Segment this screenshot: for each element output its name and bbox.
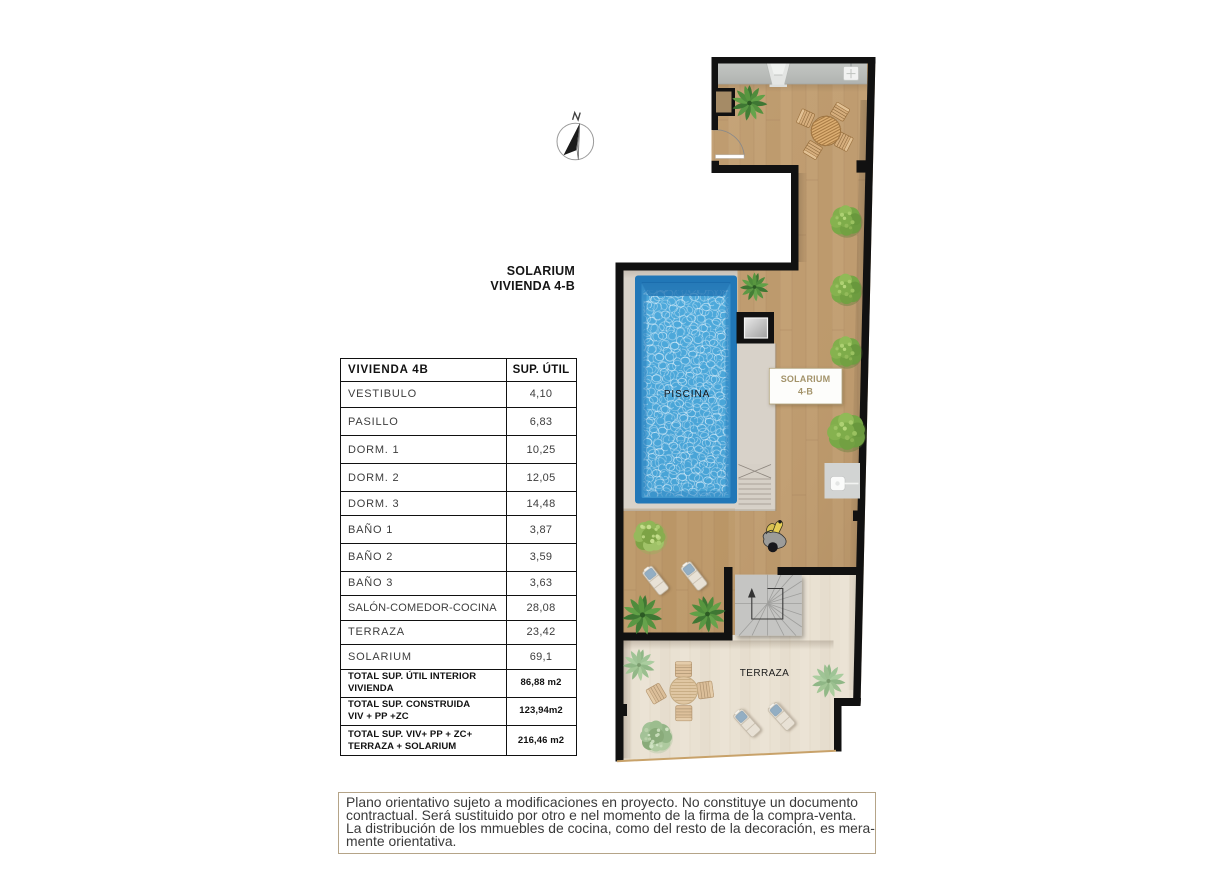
svg-text:TERRAZA: TERRAZA <box>740 668 789 679</box>
svg-text:SOLARIUM: SOLARIUM <box>781 374 831 384</box>
svg-text:PISCINA: PISCINA <box>664 389 710 400</box>
svg-text:4-B: 4-B <box>798 387 813 397</box>
